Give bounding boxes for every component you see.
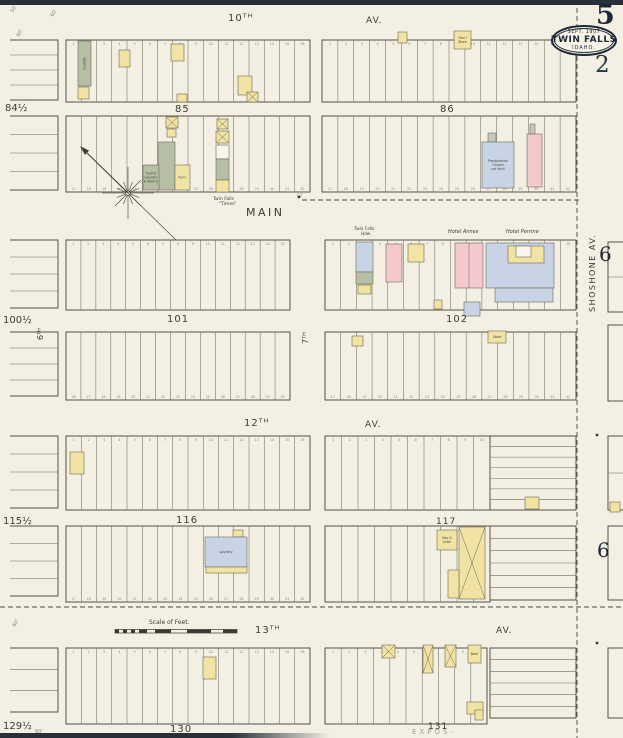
scale-bar-segment	[155, 630, 171, 634]
lot-number: 4	[118, 42, 120, 46]
map-caption: Scale of Feet.	[149, 619, 190, 626]
building	[386, 244, 402, 282]
scale-bar-segment	[187, 630, 211, 634]
lot-number: 9	[192, 242, 194, 246]
building	[495, 288, 553, 302]
lot-number: 30	[270, 187, 274, 191]
lot-number: 22	[161, 395, 165, 399]
scale-bar-segment	[223, 630, 237, 634]
building	[408, 244, 424, 262]
lot-number: 21	[146, 395, 150, 399]
lot-number: 27	[224, 597, 228, 601]
page-number: 2	[595, 54, 610, 77]
map-caption: Hotel Perrine	[506, 229, 539, 235]
lot-number: 26	[209, 187, 213, 191]
lot-number: 31	[285, 187, 289, 191]
street-label: MAIN	[246, 206, 285, 219]
lot-number: 24	[440, 395, 444, 399]
lot-number: 20	[131, 395, 135, 399]
building	[530, 124, 535, 134]
building	[158, 142, 175, 190]
dimension-label: 50'	[10, 4, 19, 14]
lot-number: 1	[329, 42, 331, 46]
lot-number: 18	[87, 187, 91, 191]
lot-number: 29	[518, 187, 522, 191]
block-number: 117	[436, 517, 456, 527]
building-label: Gen'lStore	[458, 36, 466, 44]
lot-number: 5	[132, 242, 134, 246]
block-number: 86	[440, 104, 455, 115]
building-label: Barn	[471, 652, 478, 656]
lot-number: 4	[379, 242, 381, 246]
lot-number: 1	[72, 242, 74, 246]
lot-number: 17	[86, 395, 90, 399]
street-label: SHOSHONE AV.	[588, 234, 597, 312]
street-label: 12ᵀᴴ	[244, 418, 269, 429]
lot-number: 2	[88, 650, 90, 654]
building	[356, 272, 373, 284]
lot-number: 27	[488, 395, 492, 399]
sanborn-map-sheet: 1234567891011121314151612345678910111213…	[0, 0, 623, 738]
lot-number: 28	[239, 187, 243, 191]
lot-number: 18	[346, 395, 350, 399]
building	[527, 134, 542, 187]
lot-number: 5	[397, 650, 399, 654]
lot-number: 19	[360, 187, 364, 191]
lot-number: 10	[480, 438, 484, 442]
lot-number: 6	[408, 42, 410, 46]
building	[434, 300, 442, 309]
lot-number: 12	[236, 242, 240, 246]
lot-number: 31	[285, 597, 289, 601]
lot-number: 23	[176, 395, 180, 399]
building-label: Laundry	[83, 57, 87, 70]
lot-number: 15	[280, 242, 284, 246]
lot-number: 22	[407, 187, 411, 191]
lot-number: 8	[179, 438, 181, 442]
lot-number: 4	[382, 438, 384, 442]
lot-number: 29	[519, 395, 523, 399]
lot-number: 1	[73, 650, 75, 654]
lot-number: 26	[471, 187, 475, 191]
lot-number: 29	[254, 597, 258, 601]
building	[398, 32, 407, 43]
lot-number: 16	[300, 650, 304, 654]
lot-number: 32	[300, 597, 304, 601]
lot-number: 1	[73, 438, 75, 442]
lot-number: 20	[378, 395, 382, 399]
lot-number: 8	[440, 42, 442, 46]
lot-number: 10	[209, 438, 213, 442]
block-number: 85	[175, 104, 190, 115]
map-caption: EXPOS-	[412, 728, 456, 736]
lot-number: 21	[393, 395, 397, 399]
lot-number: 9	[464, 438, 466, 442]
lot-number: 11	[224, 42, 228, 46]
lot-number: 22	[409, 395, 413, 399]
lot-number: 17	[328, 187, 332, 191]
partial-block	[608, 526, 623, 600]
lot-number: 8	[442, 242, 444, 246]
lot-number: 8	[448, 438, 450, 442]
lot-number: 4	[118, 438, 120, 442]
lot-number: 23	[163, 597, 167, 601]
lot-number: 25	[456, 395, 460, 399]
lot-number: 13	[254, 42, 258, 46]
building	[356, 242, 373, 272]
lot-number: 28	[239, 597, 243, 601]
lot-number: 15	[285, 438, 289, 442]
lot-number: 5	[398, 438, 400, 442]
lot-number: 8	[177, 242, 179, 246]
building-label: Hay &Grain	[442, 536, 452, 544]
adjacent-sheet-ref-upper: 6	[599, 244, 612, 264]
building-label: Laundry	[220, 550, 233, 554]
title-oval-badge: SEPT. 1907 TWIN FALLS IDAHO.	[551, 25, 617, 56]
building	[206, 567, 247, 573]
lot-number: 2	[87, 242, 89, 246]
lot-number: 14	[270, 42, 274, 46]
lot-number: 5	[134, 650, 136, 654]
lot-number: 3	[103, 438, 105, 442]
building	[516, 246, 531, 257]
compass-ray	[115, 195, 126, 206]
lot-number: 24	[439, 187, 443, 191]
lot-number: 19	[102, 597, 106, 601]
lot-number: 7	[164, 438, 166, 442]
map-caption: Hotel Annex	[448, 229, 479, 235]
lot-number: 3	[364, 650, 366, 654]
lot-number: 19	[102, 187, 106, 191]
street-label: 6ᵀᴴ	[36, 328, 45, 340]
building	[119, 50, 130, 67]
lot-number: 6	[149, 438, 151, 442]
street-label: AV.	[496, 626, 512, 636]
lot-number: 11	[224, 650, 228, 654]
building	[216, 180, 229, 192]
lot-number: 1	[332, 438, 334, 442]
lot-number: 23	[423, 187, 427, 191]
scan-edge-bottom	[0, 733, 330, 738]
lot-number: 3	[365, 438, 367, 442]
building	[216, 159, 229, 180]
building	[171, 44, 184, 61]
block-number: 101	[167, 314, 189, 325]
building	[233, 530, 243, 537]
scale-bar-segment	[115, 630, 119, 634]
building	[525, 497, 539, 509]
adjacent-sheet-ref-lower: 6	[597, 540, 610, 560]
margin-block-number: 100½	[3, 314, 32, 326]
lot-number: 17	[71, 597, 75, 601]
building	[78, 87, 89, 99]
lot-number: 11	[487, 42, 491, 46]
lot-number: 11	[224, 438, 228, 442]
lot-number: 1	[73, 42, 75, 46]
lot-number: 30	[270, 597, 274, 601]
building	[70, 452, 84, 474]
lot-number: 7	[424, 42, 426, 46]
lot-number: 13	[251, 242, 255, 246]
lot-number: 18	[101, 395, 105, 399]
street-label: 10ᵀᴴ	[228, 13, 253, 24]
building	[358, 285, 371, 294]
lot-number: 32	[300, 187, 304, 191]
block-number: 102	[446, 314, 468, 325]
lot-number: 10	[206, 242, 210, 246]
street-label: 13ᵀᴴ	[255, 625, 280, 636]
map-caption: "Times"	[219, 201, 237, 207]
lot-number: 16	[300, 438, 304, 442]
dimension-label: 60'	[50, 8, 59, 18]
scale-bar	[115, 630, 237, 634]
partial-block	[608, 648, 623, 718]
lot-number: 2	[88, 438, 90, 442]
sheet-number: 5	[596, 2, 615, 29]
buildings-layer: LaundryGen'lStoreFurn'dLaundry& RoomsFur…	[70, 31, 620, 720]
lot-number: 20	[117, 597, 121, 601]
lot-number: 7	[162, 242, 164, 246]
lot-number: 25	[455, 187, 459, 191]
lot-number: 3	[102, 242, 104, 246]
lot-number: 8	[179, 650, 181, 654]
building	[216, 145, 229, 159]
lot-number: 9	[462, 650, 464, 654]
lot-number: 14	[270, 650, 274, 654]
lot-number: 21	[132, 597, 136, 601]
lot-number: 23	[425, 395, 429, 399]
street-label: AV.	[365, 420, 381, 430]
lot-number: 28	[503, 395, 507, 399]
lot-number: 30	[535, 395, 539, 399]
lot-number: 7	[426, 242, 428, 246]
lot-number: 31	[550, 187, 554, 191]
lot-number: 25	[193, 187, 197, 191]
map-caption: Hdw.	[361, 231, 371, 236]
lot-number: 6	[415, 438, 417, 442]
margin-block-number: 129½	[3, 720, 32, 732]
lot-number: 31	[550, 395, 554, 399]
lot-number: 24	[191, 395, 195, 399]
margin-block-number: 84½	[5, 102, 28, 114]
scale-bar-segment	[139, 630, 147, 634]
lot-number: 3	[361, 42, 363, 46]
lot-number: 5	[392, 42, 394, 46]
lot-number: 2	[345, 42, 347, 46]
lot-number: 13	[518, 42, 522, 46]
lot-number: 26	[209, 597, 213, 601]
lot-number: 14	[534, 42, 538, 46]
lot-number: 16	[71, 395, 75, 399]
lot-number: 9	[195, 650, 197, 654]
lot-number: 30	[280, 395, 284, 399]
lot-number: 3	[103, 42, 105, 46]
street-label: AV.	[366, 16, 382, 26]
building-label: Store	[493, 335, 501, 339]
dimension-label: 60'	[16, 28, 25, 38]
lot-number: 28	[251, 395, 255, 399]
scan-edge-top	[0, 0, 623, 5]
building	[203, 657, 216, 679]
lot-number: 14	[270, 438, 274, 442]
lot-number: 4	[118, 650, 120, 654]
survey-dot	[596, 434, 599, 437]
lot-number: 24	[178, 597, 182, 601]
lot-number: 10	[209, 42, 213, 46]
lot-number: 7	[164, 42, 166, 46]
lot-number: 12	[239, 42, 243, 46]
city-block	[66, 332, 290, 400]
scale-bar-segment	[131, 630, 135, 634]
lot-number: 6	[147, 242, 149, 246]
building	[448, 570, 459, 598]
lot-number: 18	[87, 597, 91, 601]
building	[352, 336, 363, 346]
lot-number: 21	[391, 187, 395, 191]
lot-number: 22	[148, 597, 152, 601]
lot-number: 14	[265, 242, 269, 246]
lot-number: 3	[103, 650, 105, 654]
lot-number: 5	[134, 42, 136, 46]
lot-number: 19	[116, 395, 120, 399]
lot-number: 1	[332, 650, 334, 654]
lot-number: 12	[239, 650, 243, 654]
lot-number: 1	[332, 242, 334, 246]
lot-number: 7	[164, 650, 166, 654]
lot-number: 5	[134, 438, 136, 442]
city-block	[66, 240, 290, 310]
lot-number: 27	[236, 395, 240, 399]
lot-number: 12	[502, 42, 506, 46]
partial-block	[10, 648, 58, 712]
lot-number: 20	[375, 187, 379, 191]
building	[475, 710, 483, 720]
lot-number: 25	[193, 597, 197, 601]
compass-tail	[128, 193, 176, 240]
building-label: Furn.	[179, 176, 187, 180]
lot-number: 10	[209, 650, 213, 654]
lot-number: 29	[254, 187, 258, 191]
lot-number: 29	[265, 395, 269, 399]
lot-number: 25	[206, 395, 210, 399]
lot-number: 16	[300, 42, 304, 46]
lot-number: 32	[566, 395, 570, 399]
lot-number: 15	[285, 650, 289, 654]
lot-number: 15	[285, 42, 289, 46]
building	[167, 129, 176, 137]
building	[177, 94, 187, 102]
lot-number: 2	[348, 650, 350, 654]
lot-number: 26	[472, 395, 476, 399]
dimension-label: 60'	[12, 618, 21, 628]
block-number: 116	[176, 515, 198, 526]
lot-number: 17	[71, 187, 75, 191]
labels-layer: 10ᵀᴴAV.MAIN12ᵀᴴAV.13ᵀᴴAV.7ᵀᴴ6ᵀᴴSHOSHONE …	[3, 4, 597, 736]
lot-number: 2	[349, 438, 351, 442]
lot-number: 12	[239, 438, 243, 442]
scale-bar-segment	[123, 630, 127, 634]
lot-number: 13	[254, 650, 258, 654]
lot-number: 4	[117, 242, 119, 246]
lot-number: 19	[362, 395, 366, 399]
margin-block-number: 115½	[3, 515, 32, 527]
lot-number: 18	[344, 187, 348, 191]
partial-block	[608, 325, 623, 401]
street-label: 7ᵀᴴ	[301, 332, 310, 344]
lot-number: 26	[221, 395, 225, 399]
dimension-label: 60'	[297, 193, 303, 198]
lot-number: 30	[534, 187, 538, 191]
lot-number: 9	[195, 438, 197, 442]
lot-number: 16	[566, 242, 570, 246]
lot-number: 13	[254, 438, 258, 442]
lot-number: 2	[347, 242, 349, 246]
lot-number: 6	[149, 42, 151, 46]
lot-number: 6	[149, 650, 151, 654]
lot-number: 32	[566, 187, 570, 191]
survey-dot	[596, 642, 599, 645]
lot-number: 11	[221, 242, 225, 246]
badge-state: IDAHO.	[572, 46, 596, 52]
lot-number: 6	[413, 650, 415, 654]
lot-number: 9	[195, 42, 197, 46]
map-canvas: 1234567891011121314151612345678910111213…	[0, 0, 623, 738]
lot-number: 7	[431, 438, 433, 442]
building	[610, 502, 620, 512]
lot-number: 4	[376, 42, 378, 46]
title-oval-inner: SEPT. 1907 TWIN FALLS IDAHO.	[554, 28, 614, 53]
building	[488, 133, 496, 142]
streets-layer	[0, 0, 623, 738]
lot-number: 17	[331, 395, 335, 399]
